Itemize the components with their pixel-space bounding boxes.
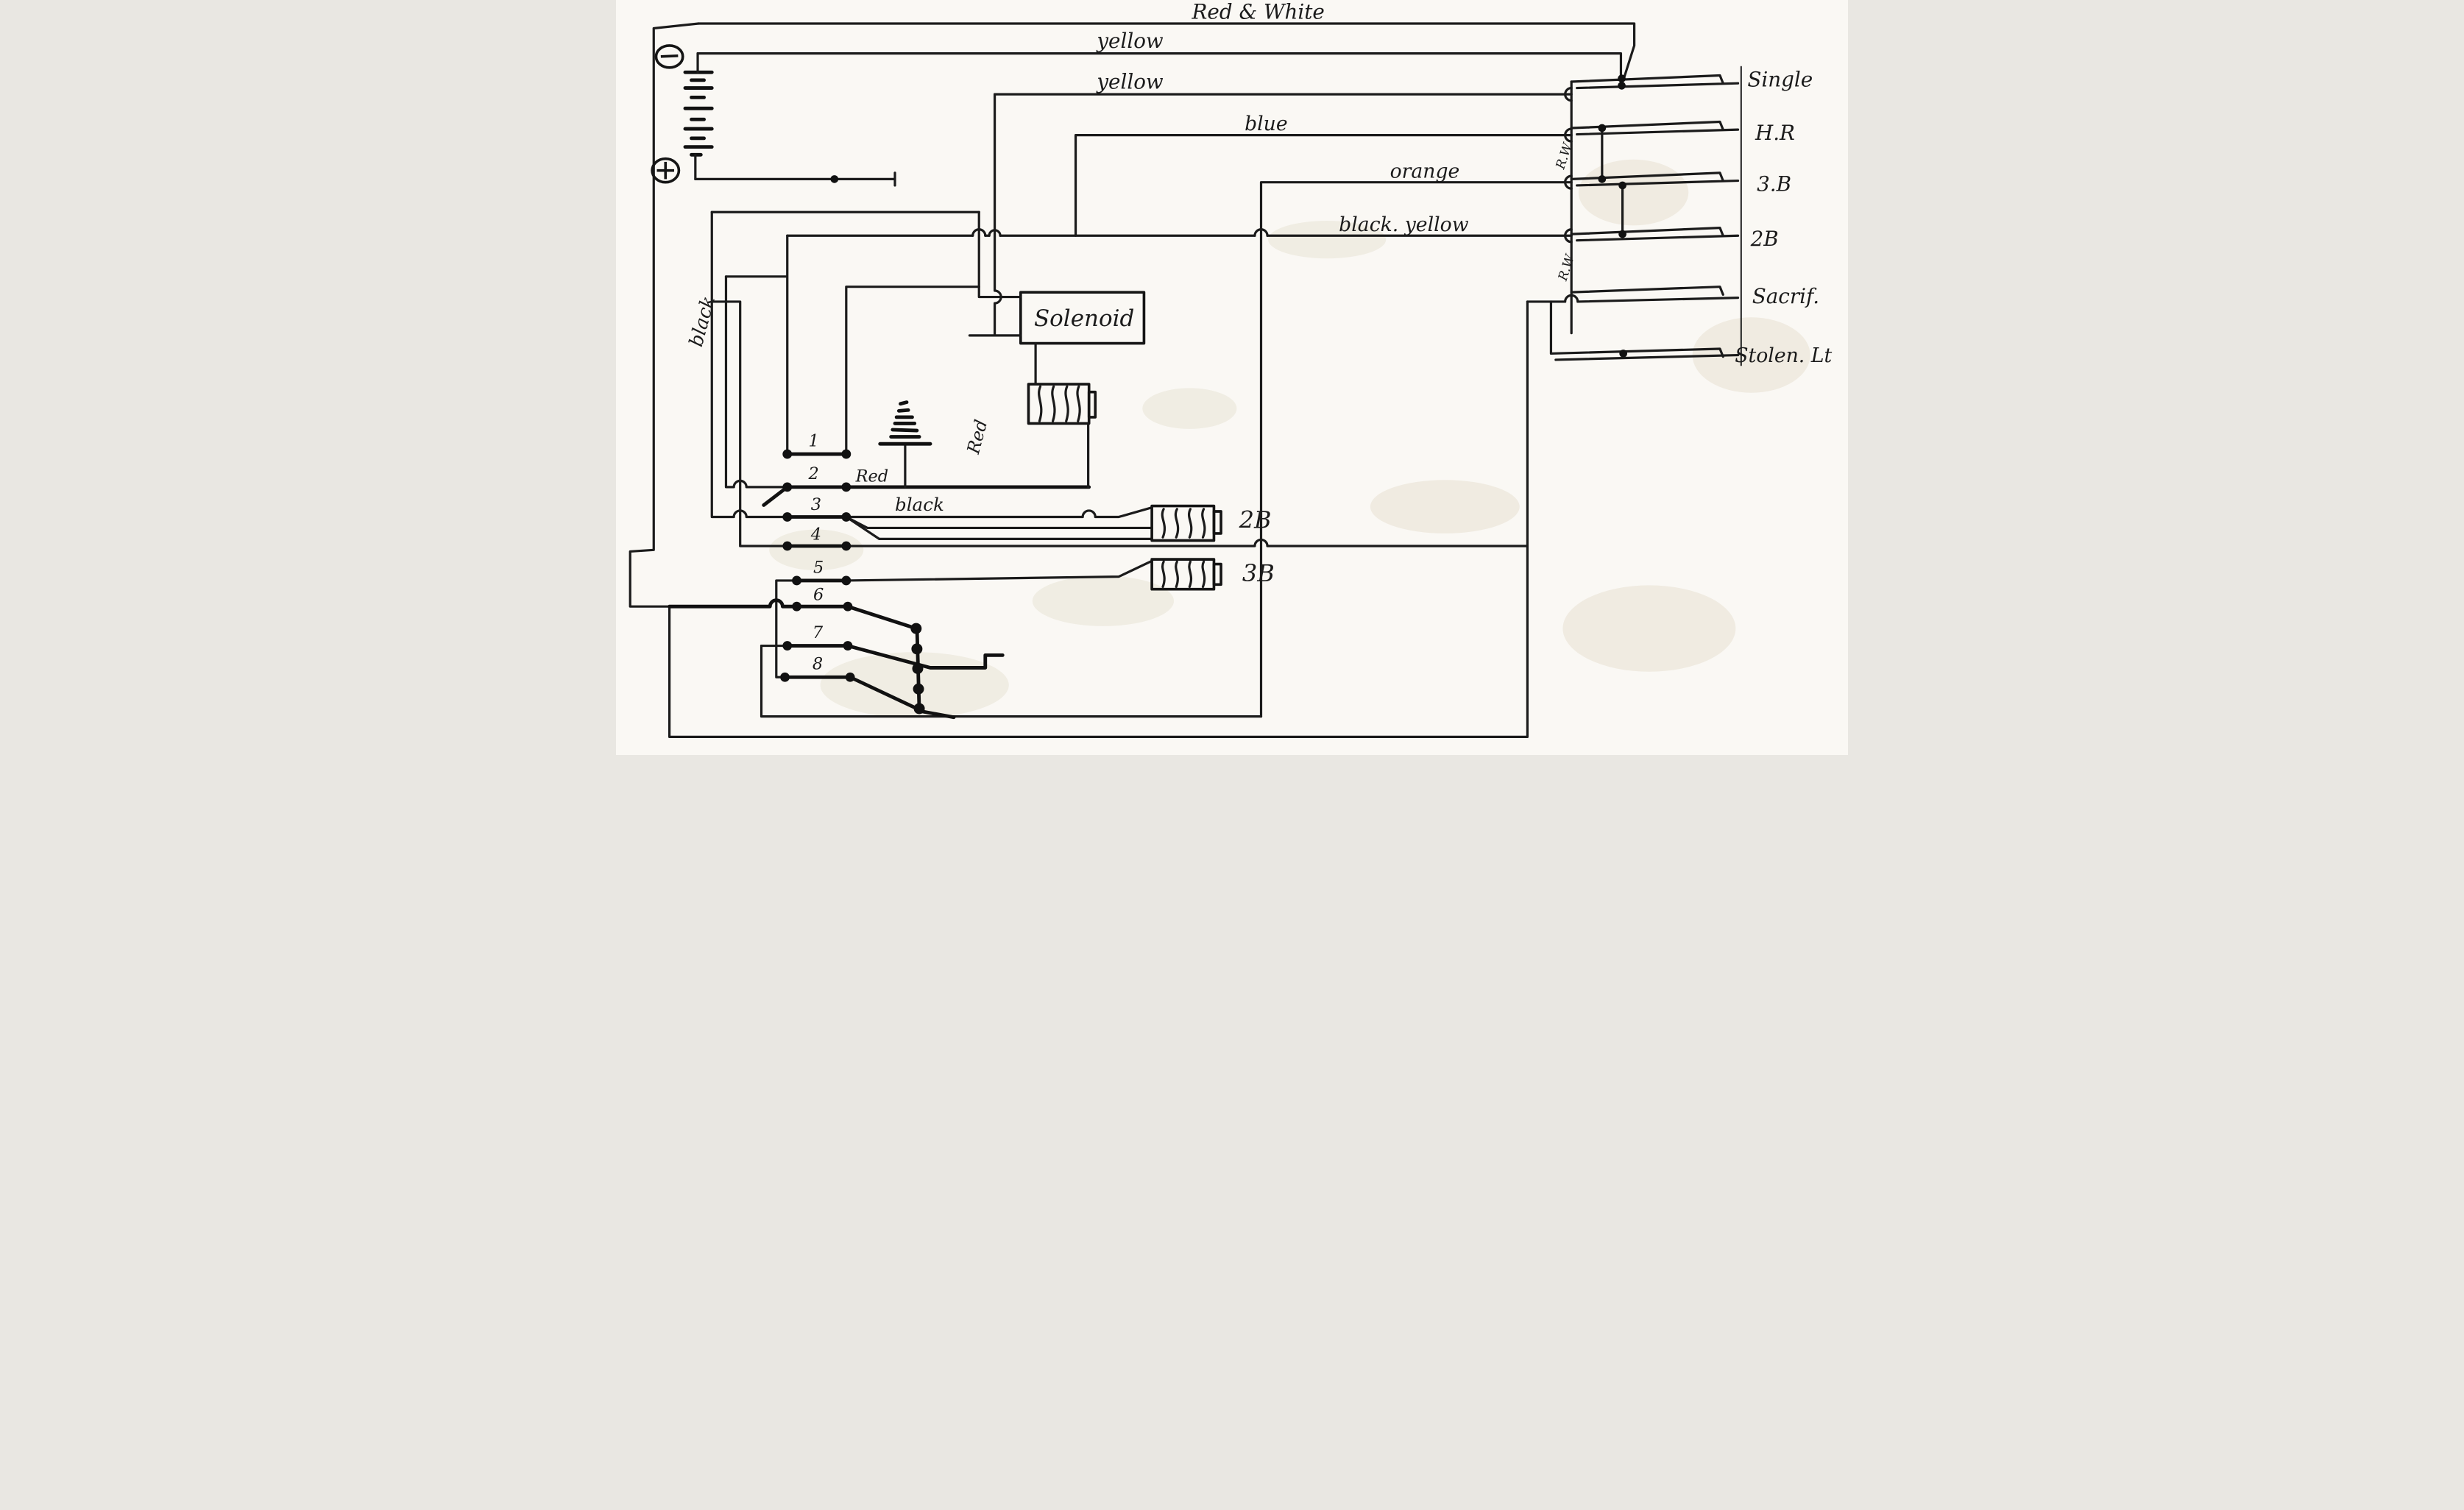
wire-label-red-vertical: Red: [963, 417, 991, 456]
terminal-label-2: 2: [808, 464, 819, 483]
circuit-label-2b: 2B: [1750, 227, 1779, 251]
paper-stains: [769, 160, 1810, 718]
wire-label-red-horizontal: Red: [855, 467, 888, 486]
wire-label-black-horizontal: black: [895, 494, 944, 515]
coil-3b: [1152, 559, 1221, 589]
terminal-label-3: 3: [811, 495, 821, 514]
wire-label-yellow-1: yellow: [1095, 29, 1164, 53]
circuit-label-stolen: Stolen. Lt: [1735, 344, 1832, 367]
circuit-label-sacrif: Sacrif.: [1752, 284, 1819, 308]
coil-2b: [1152, 506, 1221, 541]
coil-3b-label: 3B: [1242, 559, 1275, 587]
labels: Red & White yellow yellow blue orange bl…: [616, 0, 1832, 674]
wire-label-black-yellow: black. yellow: [1339, 213, 1469, 236]
terminal-label-8: 8: [813, 655, 823, 674]
wire-label-yellow-2: yellow: [1095, 70, 1164, 94]
solenoid-label: Solenoid: [1034, 305, 1134, 332]
terminal-label-4: 4: [810, 525, 821, 544]
circuit-label-3b: 3.B: [1757, 171, 1791, 196]
terminal-label-5: 5: [813, 558, 824, 577]
coil-2b-label: 2B: [1239, 506, 1272, 534]
junction-dots: [780, 74, 1627, 681]
circuit-label-hr: H.R: [1755, 121, 1795, 145]
wire-label-rw-2: R.W: [1556, 252, 1579, 283]
wire-label-blue: blue: [1245, 113, 1288, 135]
circuit-label-single: Single: [1747, 67, 1813, 91]
wire-label-orange: orange: [1390, 160, 1460, 182]
terminal-label-7: 7: [813, 623, 824, 642]
terminal-label-1: 1: [809, 431, 819, 450]
battery-symbol: [652, 46, 712, 182]
wiring-diagram-canvas: Red & White yellow yellow blue orange bl…: [616, 0, 1848, 755]
terminal-label-6: 6: [813, 586, 824, 605]
wire-label-black-vertical: black: [685, 294, 720, 349]
scanned-wiring-diagram: Red & White yellow yellow blue orange bl…: [616, 0, 1848, 755]
primary-coil: [1028, 344, 1095, 487]
wire-label-red-white: Red & White: [1192, 0, 1325, 24]
outer-border-wires: [630, 24, 1527, 737]
